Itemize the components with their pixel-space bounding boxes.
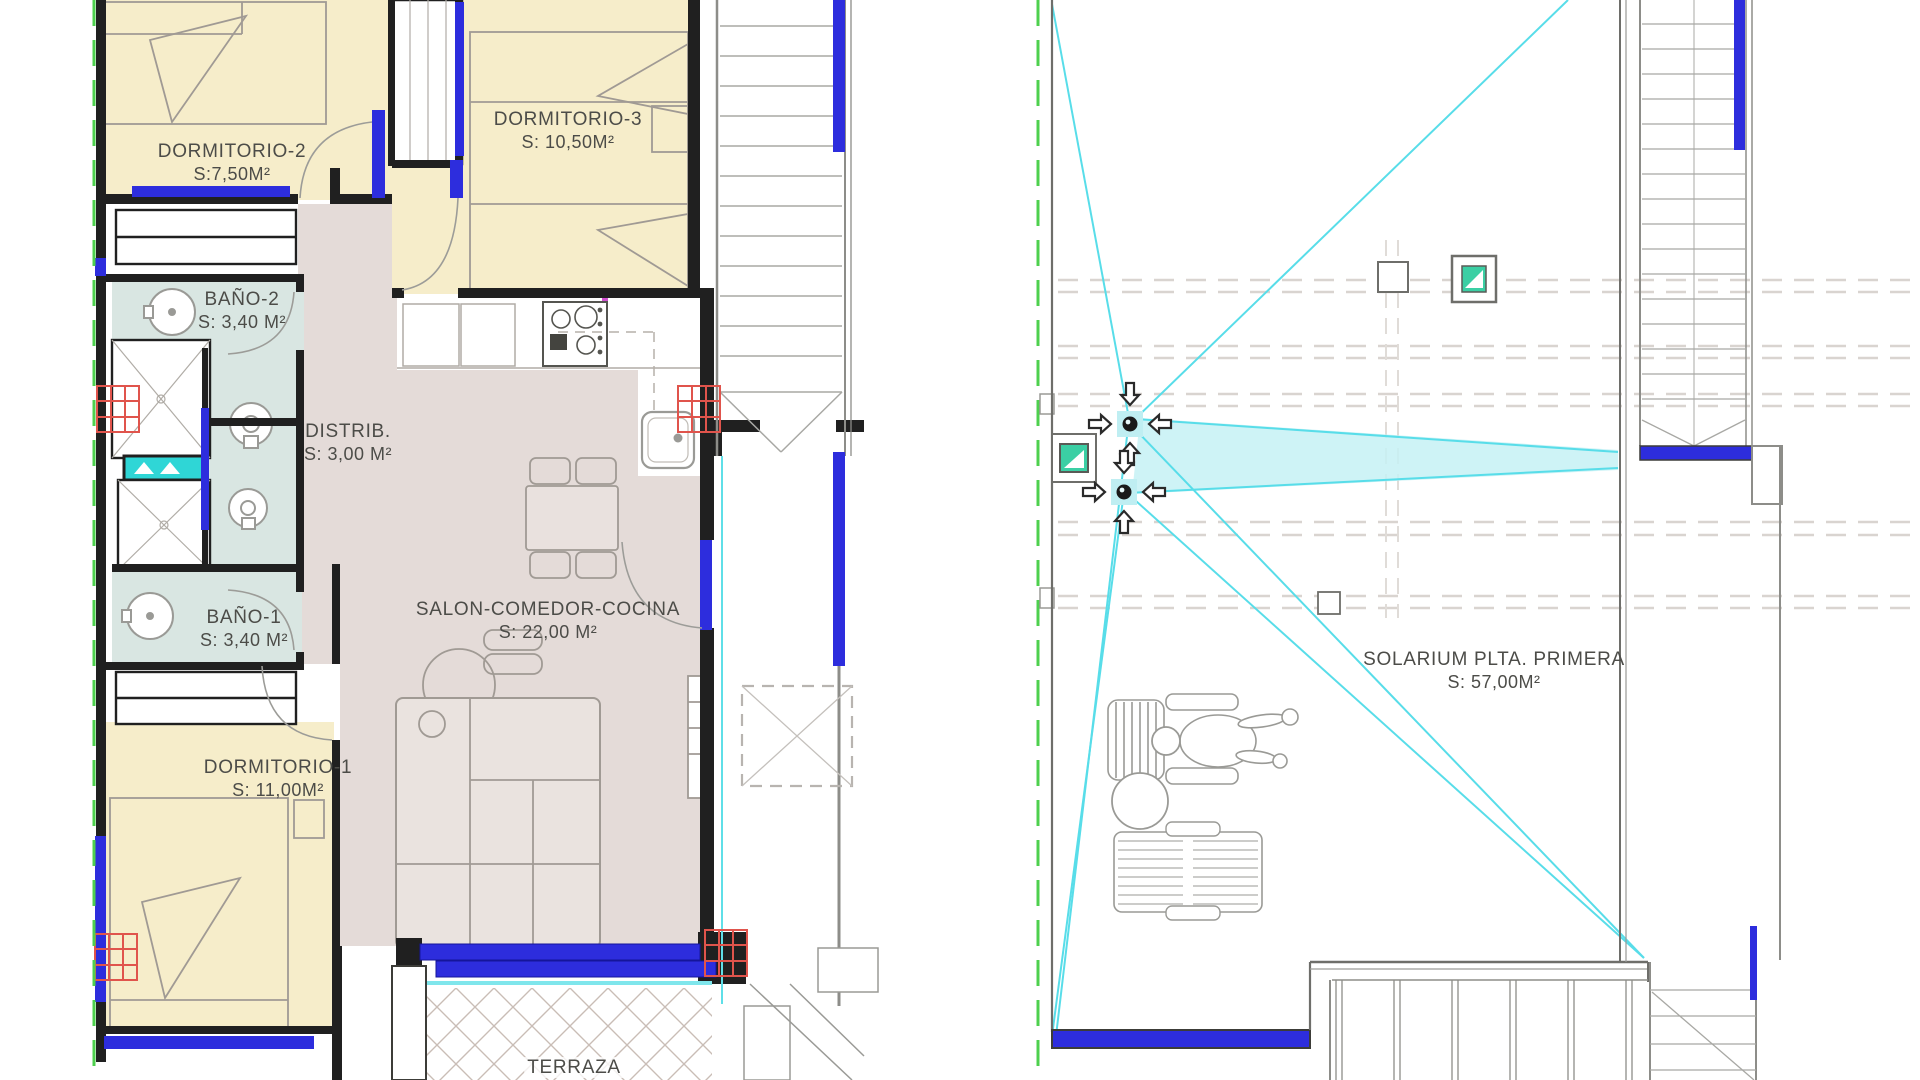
bottom-stairs xyxy=(1330,926,1757,1080)
right-plan-solarium xyxy=(1052,0,1914,1080)
stair-window xyxy=(1750,926,1757,1000)
wheelchair-user-symbol xyxy=(1108,694,1298,784)
terrace-planter xyxy=(392,966,426,1080)
roof-opening xyxy=(1378,262,1408,292)
landing-window xyxy=(1640,446,1752,460)
stair-window xyxy=(1734,0,1745,150)
entrance-door-leaf xyxy=(700,540,712,630)
sliding-door-panel xyxy=(420,944,700,960)
door-leaf-dormitorio2 xyxy=(372,110,385,198)
room-label-bano-2: BAÑO-2 S: 3,40 M² xyxy=(198,288,286,334)
parapet-window xyxy=(1052,1030,1310,1048)
room-label-salon-comedor-cocina: SALON-COMEDOR-COCINA S: 22,00 M² xyxy=(416,598,680,644)
head xyxy=(1152,727,1180,755)
showers xyxy=(112,340,210,570)
stair-window xyxy=(833,0,845,152)
room-label-dormitorio-1: DORMITORIO-1 S: 11,00M² xyxy=(204,756,352,802)
window-dormitorio1-bottom xyxy=(104,1036,314,1049)
garden-steps xyxy=(744,948,878,1080)
kitchen-cabinet xyxy=(403,304,459,366)
headrest xyxy=(1166,906,1220,920)
room-label-dormitorio-2: DORMITORIO-2 S:7,50M² xyxy=(158,140,306,186)
round-table xyxy=(1112,773,1168,829)
solarium-furniture xyxy=(1112,773,1262,920)
headrest xyxy=(1166,822,1220,836)
room-label-bano-1: BAÑO-1 S: 3,40 M² xyxy=(200,606,288,652)
dining-table xyxy=(526,486,618,550)
floor-plan-sheet: DORMITORIO-2 S:7,50M² DORMITORIO-3 S: 10… xyxy=(0,0,1920,1080)
sliding-door-panel xyxy=(436,961,716,977)
wheel xyxy=(1166,694,1238,710)
roof-opening xyxy=(1318,592,1340,614)
room-label-dormitorio-3: DORMITORIO-3 S: 10,50M² xyxy=(494,108,642,154)
right-stair-strip xyxy=(1640,0,1782,960)
window-closet xyxy=(455,2,464,156)
room-label-terraza: TERRAZA xyxy=(524,1056,624,1079)
towel-shelf xyxy=(124,456,204,480)
window-dormitorio2 xyxy=(132,186,290,197)
room-label-solarium: SOLARIUM PLTA. PRIMERA S: 57,00M² xyxy=(1363,648,1625,694)
room-label-distribuidor: DISTRIB. S: 3,00 M² xyxy=(304,420,392,466)
kitchen-cabinet xyxy=(461,304,515,366)
porch-window xyxy=(833,452,845,666)
window-bano2 xyxy=(95,258,106,276)
partition-glass xyxy=(201,408,209,530)
wheel xyxy=(1166,768,1238,784)
closet-strip xyxy=(392,0,462,168)
window-dormitorio1 xyxy=(95,836,106,1002)
door-leaf-dormitorio3 xyxy=(450,160,463,198)
